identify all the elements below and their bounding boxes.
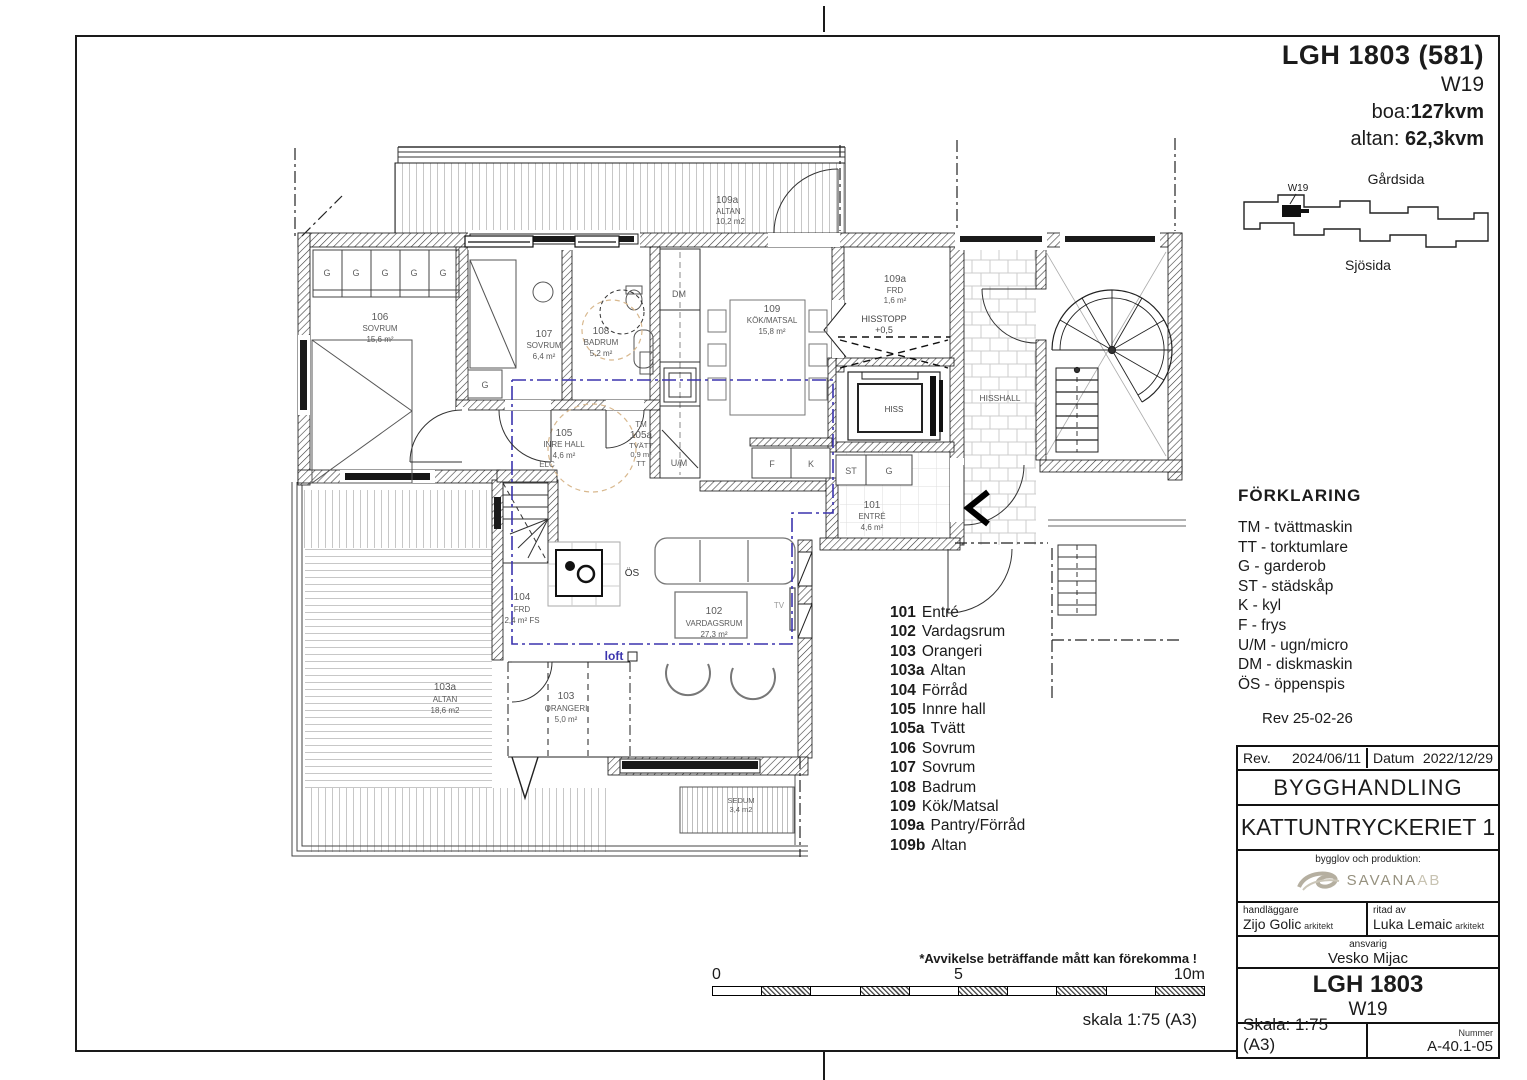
bed-106 [312,340,412,483]
label-tm: TM [635,420,647,429]
label-106-area: 15,6 m² [366,335,393,344]
label-105a-area: 0,9 m² [630,450,652,459]
label-109a-area: 1,6 m² [884,296,907,305]
terrace-109b [395,147,845,235]
label-107-name: SOVRUM [526,341,561,350]
label-109b-altan-name: ALTAN [716,207,741,216]
label-109-num: 109 [764,304,781,315]
label-103-area: 5,0 m² [555,715,578,724]
label-sedum-name: SEDUM [727,796,754,805]
label-106-num: 106 [372,312,389,323]
label-garderob: G [381,268,388,278]
label-108-name: BADRUM [584,338,619,347]
label-garderob: G [410,268,417,278]
armchair [666,664,710,695]
label-garderob: G [323,268,330,278]
label-105a-name: TVÄTT [629,441,653,450]
label-109b-altan-area: 10,2 m2 [716,217,745,226]
label-tt: TT [636,459,646,468]
label-ugn-micro: U/M [671,458,688,468]
label-108-num: 108 [593,326,610,337]
label-elc: ELC [539,460,555,469]
label-garderob: G [352,268,359,278]
label-garderob: G [439,268,446,278]
label-105a-num: 105a [630,430,653,441]
label-garderob: G [885,466,892,476]
label-109-name: KÖK/MATSAL [747,316,798,325]
armchair [731,668,775,699]
label-105-name: INRE HALL [543,440,585,449]
winder-stair-104 [503,483,548,563]
label-103-name: ORANGERI [545,704,588,713]
label-104-name: FRD [514,605,531,614]
orangeri-glazing [508,652,637,798]
label-hiss: HISS [885,405,904,414]
kitchen-counter [660,249,700,478]
south-windows-102 [620,759,760,773]
label-109a-name: FRD [887,286,904,295]
label-107-num: 107 [536,329,553,340]
label-101-area: 4,6 m² [861,523,884,532]
label-103a-name: ALTAN [433,695,458,704]
label-106-name: SOVRUM [362,324,397,333]
label-108-area: 5,2 m² [590,349,613,358]
label-109b-altan-num: 109a [716,195,739,206]
label-102-num: 102 [706,606,723,617]
floor-plan-svg: 109a ALTAN 10,2 m2 106 SOVRUM 15,6 m² 10… [0,0,1527,1080]
label-104-num: 104 [514,592,531,603]
label-104-area: 2,4 m² FS [504,616,539,625]
label-102-name: VARDAGSRUM [686,619,743,628]
label-103-num: 103 [558,691,575,702]
label-101-num: 101 [864,500,881,511]
label-frys: F [769,459,775,469]
label-105-num: 105 [556,428,573,439]
label-stadskap: ST [845,466,857,476]
label-hisstopp-level: +0,5 [875,325,893,335]
label-107-area: 6,4 m² [533,352,556,361]
label-sedum-area: 3,4 m2 [730,805,753,814]
label-101-name: ENTRÉ [858,512,885,521]
label-103a-area: 18,6 m2 [431,706,460,715]
label-109-area: 15,8 m² [758,327,785,336]
label-tv: TV [774,601,785,610]
label-102-area: 27,3 m² [700,630,727,639]
label-109a-num: 109a [884,274,907,285]
label-hisstopp: HISSTOPP [861,314,906,324]
exterior-stair [1048,520,1186,615]
label-kyl: K [808,459,814,469]
label-diskmaskin: DM [672,289,686,299]
fireplace-os [548,542,620,606]
label-103a-num: 103a [434,682,457,693]
label-oppenspis: ÖS [625,567,640,579]
label-loft: loft [605,649,624,663]
label-105-area: 4,6 m² [553,451,576,460]
label-hisshall: HISSHALL [979,393,1020,403]
chair-107 [533,282,553,302]
spiral-staircase [1046,252,1172,456]
label-garderob: G [481,380,488,390]
